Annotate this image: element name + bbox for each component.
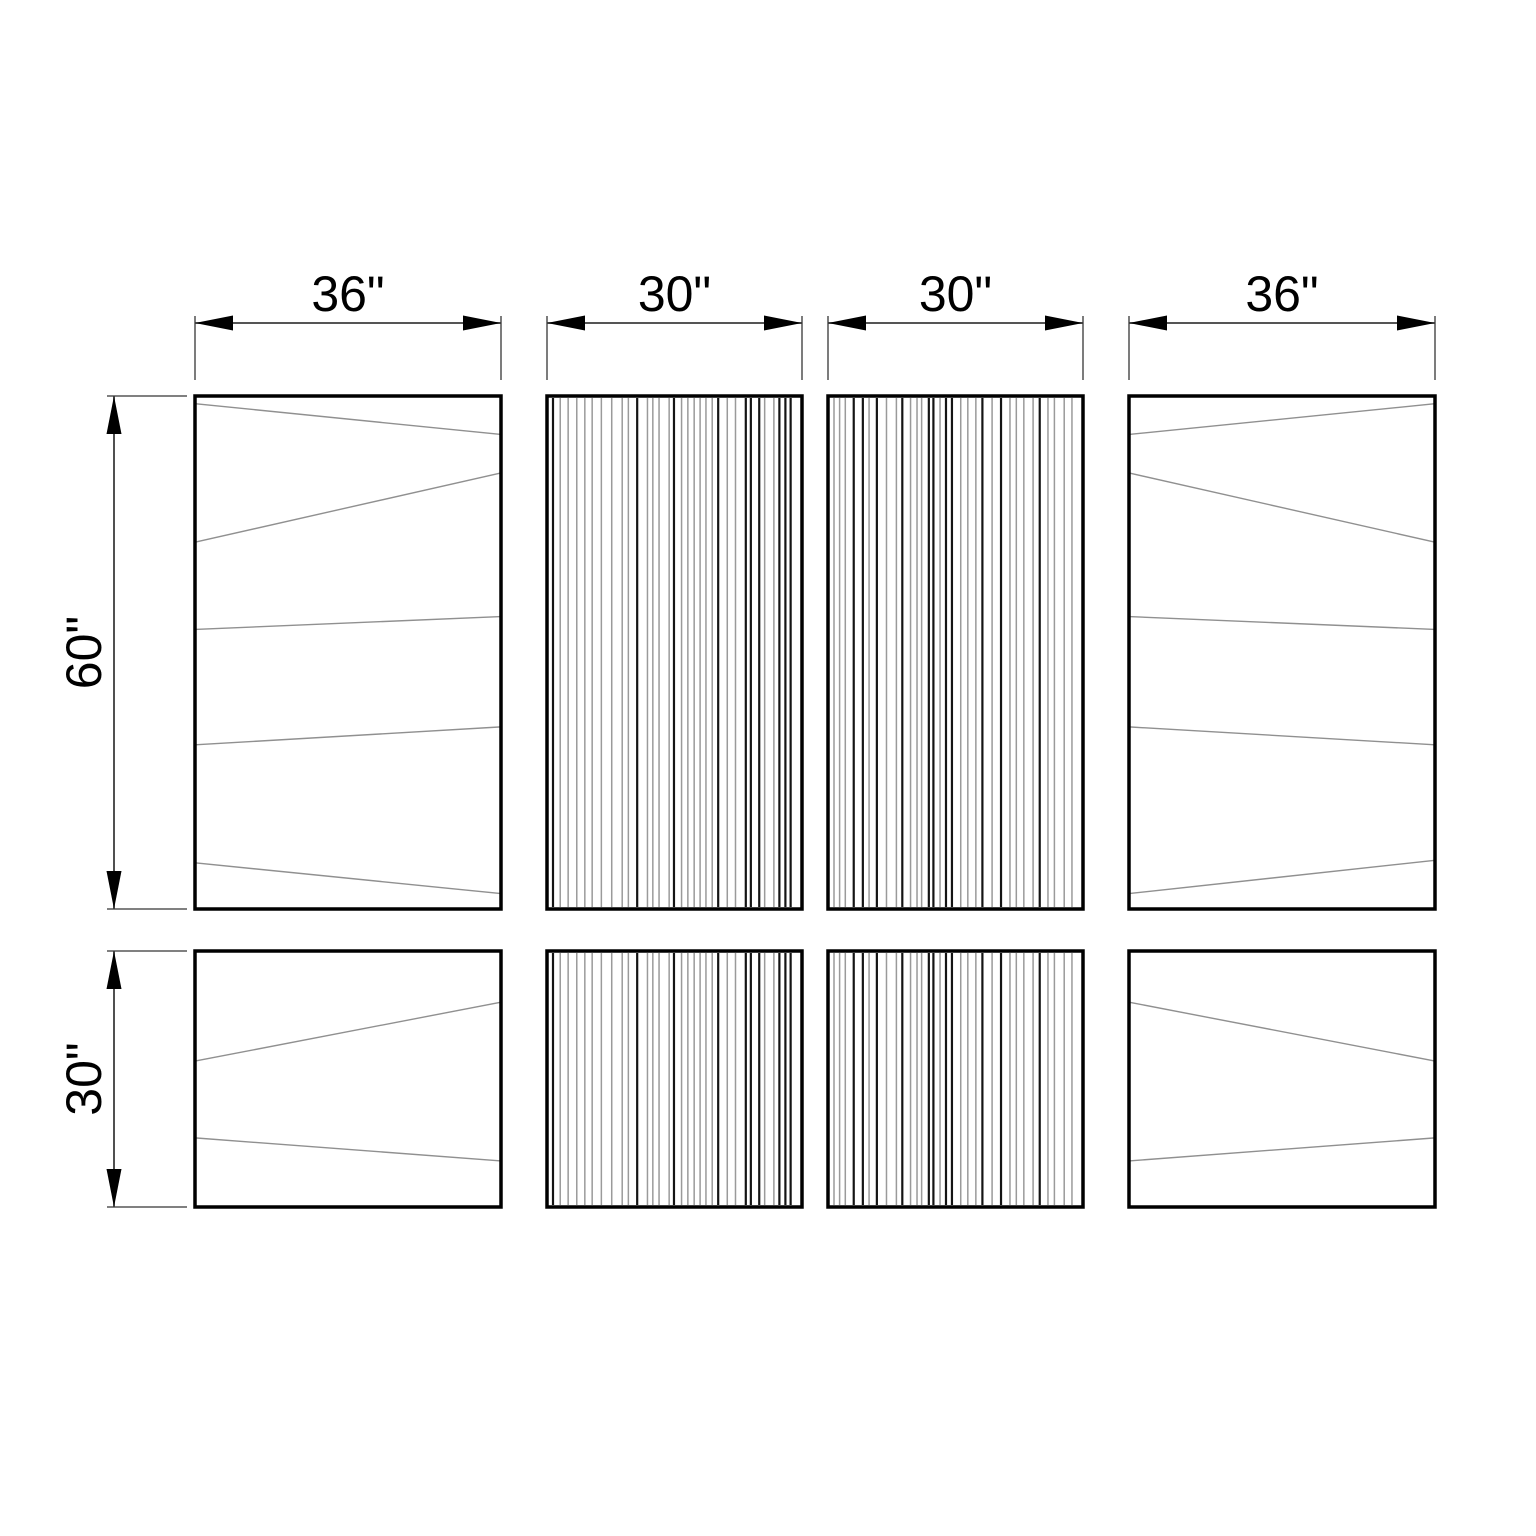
- dimension-label: 30": [56, 1042, 112, 1115]
- background: [0, 0, 1536, 1536]
- dimension-label: 36": [311, 266, 384, 322]
- dimension-label: 30": [919, 266, 992, 322]
- panel-elevation-drawing: 36"30"30"36"60"30": [0, 0, 1536, 1536]
- dimension-label: 30": [638, 266, 711, 322]
- dimension-label: 60": [56, 616, 112, 689]
- dimension-label: 36": [1245, 266, 1318, 322]
- drawing-canvas: 36"30"30"36"60"30": [0, 0, 1536, 1536]
